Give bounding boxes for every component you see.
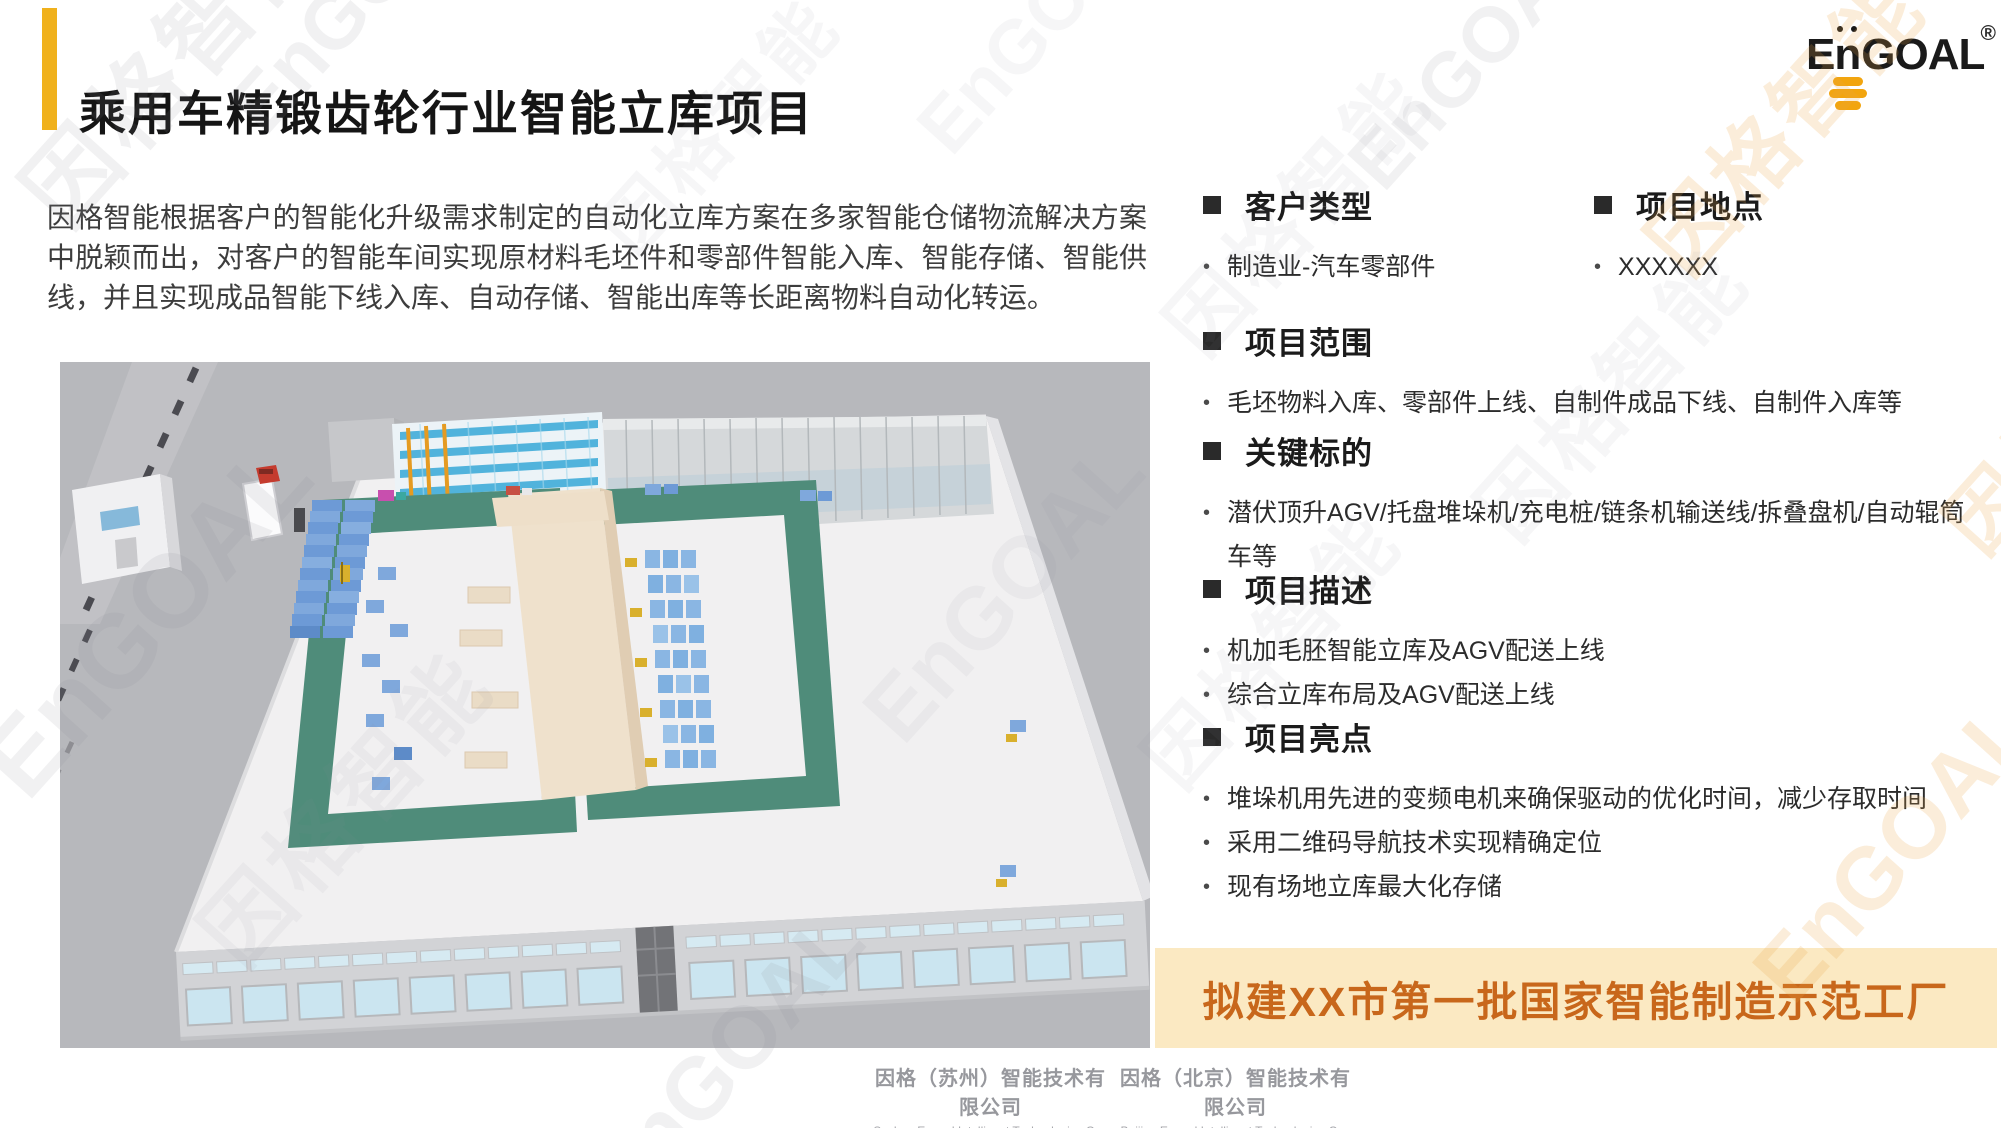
company-name-cn: 因格（北京）智能技术有限公司 — [1113, 1062, 1358, 1120]
section-bullet-square — [1203, 442, 1221, 460]
logo-letter-n-glyph: n — [1834, 30, 1861, 79]
list-item: •综合立库布局及AGV配送上线 — [1203, 673, 1993, 717]
bullet-dot: • — [1203, 491, 1210, 535]
section-description: 项目描述 •机加毛胚智能立库及AGV配送上线 •综合立库布局及AGV配送上线 — [1203, 566, 1993, 717]
list-item: •XXXXXX — [1594, 245, 1995, 289]
section-bullet-square — [1203, 728, 1221, 746]
company-name-cn: 因格（苏州）智能技术有限公司 — [868, 1062, 1113, 1120]
list-item: •制造业-汽车零部件 — [1203, 245, 1594, 289]
section-title: 关键标的 — [1245, 428, 1373, 473]
engoal-logo: E n GOAL ® — [1806, 30, 1996, 140]
logo-letters-goal: GOAL — [1861, 30, 1984, 80]
bullet-dot: • — [1203, 245, 1210, 289]
section-scope: 项目范围 •毛坯物料入库、零部件上线、自制件成品下线、自制件入库等 — [1203, 318, 1998, 425]
section-title: 项目地点 — [1636, 182, 1764, 227]
bee-body-icon — [1829, 77, 1867, 110]
company-name-en: Suzhou Engoal Intelligent Technologies C… — [868, 1124, 1113, 1128]
section-title: 项目范围 — [1245, 318, 1373, 363]
engoal-logo-wordmark: E n GOAL — [1806, 30, 1996, 80]
section-title: 客户类型 — [1245, 182, 1373, 227]
warehouse-3d-render-panel — [60, 362, 1150, 1048]
list-item: •毛坯物料入库、零部件上线、自制件成品下线、自制件入库等 — [1203, 381, 1998, 425]
section-title: 项目亮点 — [1245, 714, 1373, 759]
list-item-text: 堆垛机用先进的变频电机来确保驱动的优化时间，减少存取时间 — [1227, 777, 1927, 821]
section-location: 项目地点 •XXXXXX — [1594, 182, 1995, 289]
list-item-text: 机加毛胚智能立库及AGV配送上线 — [1227, 629, 1605, 673]
bullet-dot: • — [1203, 381, 1210, 425]
section-bullet-square — [1203, 332, 1221, 350]
watermark-text: EnGOAL — [900, 0, 1177, 170]
banner-text: 拟建XX市第一批国家智能制造示范工厂 — [1203, 968, 1950, 1028]
list-item-text: 制造业-汽车零部件 — [1227, 245, 1435, 289]
section-title: 项目描述 — [1245, 566, 1373, 611]
company-suzhou: 因格（苏州）智能技术有限公司 Suzhou Engoal Intelligent… — [868, 1062, 1113, 1128]
list-item-text: 采用二维码导航技术实现精确定位 — [1227, 821, 1602, 865]
section-bullet-square — [1203, 580, 1221, 598]
bullet-dot: • — [1203, 865, 1210, 909]
logo-letter-n: n — [1834, 30, 1861, 80]
list-item: •机加毛胚智能立库及AGV配送上线 — [1203, 629, 1993, 673]
section-bullet-square — [1594, 196, 1612, 214]
section-row-customer-location: 客户类型 •制造业-汽车零部件 项目地点 •XXXXXX — [1203, 182, 1995, 289]
warehouse-3d-render — [60, 362, 1150, 1048]
logo-letter-e: E — [1806, 30, 1834, 80]
section-key-targets: 关键标的 •潜伏顶升AGV/托盘堆垛机/充电桩/链条机输送线/拆叠盘机/自动辊筒… — [1203, 428, 1993, 579]
section-customer-type: 客户类型 •制造业-汽车零部件 — [1203, 182, 1594, 289]
list-item-text: 现有场地立库最大化存储 — [1227, 865, 1502, 909]
footer: 因格（苏州）智能技术有限公司 Suzhou Engoal Intelligent… — [868, 1062, 1358, 1128]
demo-factory-banner: 拟建XX市第一批国家智能制造示范工厂 — [1155, 948, 1997, 1048]
list-item-text: 综合立库布局及AGV配送上线 — [1227, 673, 1555, 717]
bullet-dot: • — [1203, 629, 1210, 673]
title-accent-bar — [42, 8, 57, 130]
list-item: •现有场地立库最大化存储 — [1203, 865, 2001, 909]
bullet-dot: • — [1203, 673, 1210, 717]
company-beijing: 因格（北京）智能技术有限公司 Beijing Engoal Intelligen… — [1113, 1062, 1358, 1128]
list-item: •堆垛机用先进的变频电机来确保驱动的优化时间，减少存取时间 — [1203, 777, 2001, 821]
bullet-dot: • — [1203, 821, 1210, 865]
registered-trademark-icon: ® — [1981, 22, 1996, 46]
bullet-dot: • — [1203, 777, 1210, 821]
watermark-text: EnGOAL — [1330, 0, 1615, 207]
list-item-text: XXXXXX — [1618, 245, 1718, 289]
bullet-dot: • — [1594, 245, 1601, 289]
list-item: •采用二维码导航技术实现精确定位 — [1203, 821, 2001, 865]
section-highlights: 项目亮点 •堆垛机用先进的变频电机来确保驱动的优化时间，减少存取时间 •采用二维… — [1203, 714, 2001, 909]
slide: 因格智能 EnGOAL 因格智能 EnGOAL 因格智能 EnGOAL 因格智能… — [0, 0, 2001, 1128]
section-bullet-square — [1203, 196, 1221, 214]
intro-paragraph: 因格智能根据客户的智能化升级需求制定的自动化立库方案在多家智能仓储物流解决方案中… — [47, 198, 1147, 318]
company-name-en: Beijing Engoal Intelligent Technologies … — [1113, 1124, 1358, 1128]
page-title: 乘用车精锻齿轮行业智能立库项目 — [79, 75, 814, 144]
list-item-text: 毛坯物料入库、零部件上线、自制件成品下线、自制件入库等 — [1227, 381, 1902, 425]
